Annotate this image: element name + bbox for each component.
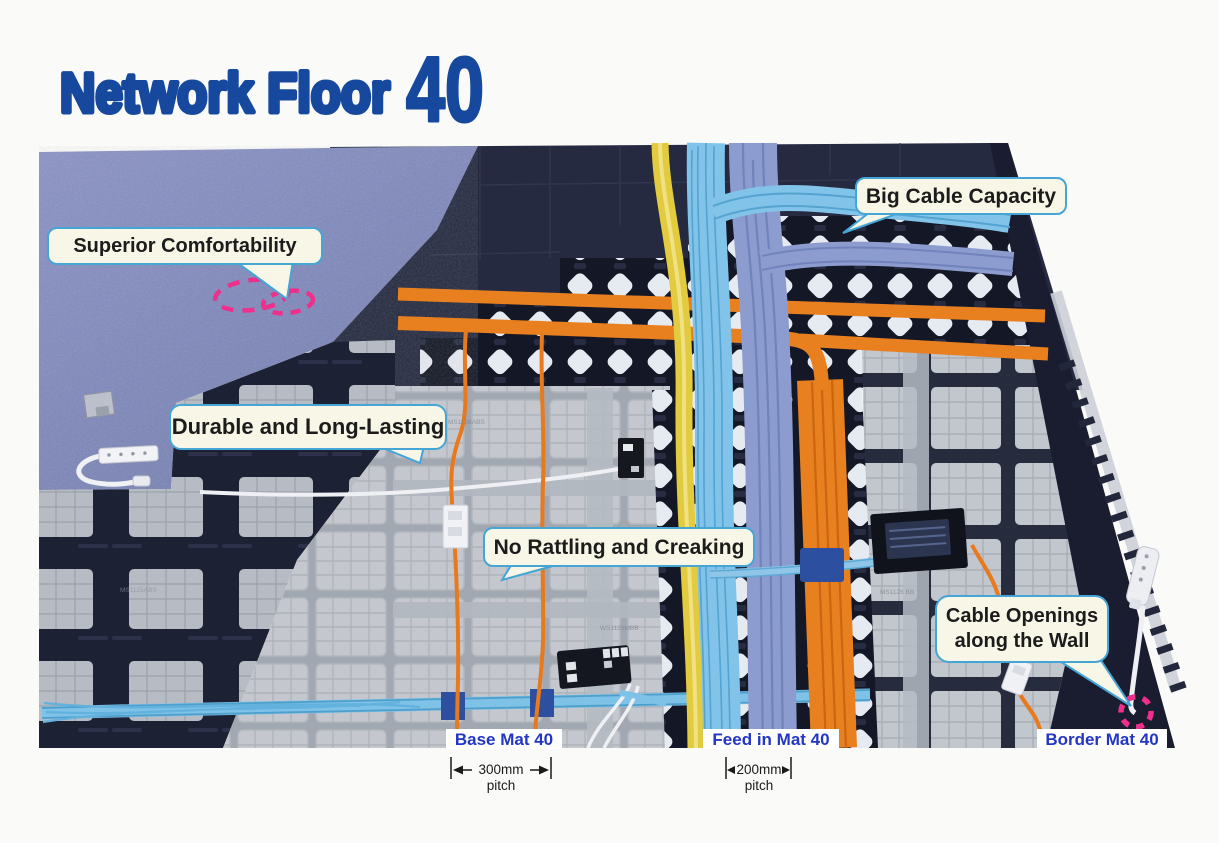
svg-text:40: 40 (406, 39, 484, 141)
svg-text:Cable Openings: Cable Openings (946, 605, 1098, 627)
svg-text:Big Cable Capacity: Big Cable Capacity (866, 185, 1057, 208)
svg-text:Network Floor: Network Floor (60, 61, 390, 124)
svg-text:WS1126MBB: WS1126MBB (600, 625, 639, 632)
svg-text:Superior Comfortability: Superior Comfortability (73, 235, 297, 257)
svg-text:Durable and Long-Lasting: Durable and Long-Lasting (172, 414, 445, 439)
svg-text:No Rattling and Creaking: No Rattling and Creaking (494, 536, 745, 559)
svg-text:MS1136ABS: MS1136ABS (448, 419, 485, 426)
svg-text:200mm: 200mm (736, 762, 781, 777)
svg-text:pitch: pitch (745, 778, 774, 793)
svg-text:along the Wall: along the Wall (955, 630, 1090, 652)
svg-text:Base Mat 40: Base Mat 40 (455, 730, 553, 749)
svg-text:MS1125ABS: MS1125ABS (120, 587, 157, 594)
svg-text:Border Mat 40: Border Mat 40 (1045, 730, 1158, 749)
svg-text:300mm: 300mm (478, 762, 523, 777)
svg-text:pitch: pitch (487, 778, 516, 793)
svg-text:Feed in Mat 40: Feed in Mat 40 (712, 730, 829, 749)
svg-text:MS1126 BB: MS1126 BB (880, 589, 914, 596)
